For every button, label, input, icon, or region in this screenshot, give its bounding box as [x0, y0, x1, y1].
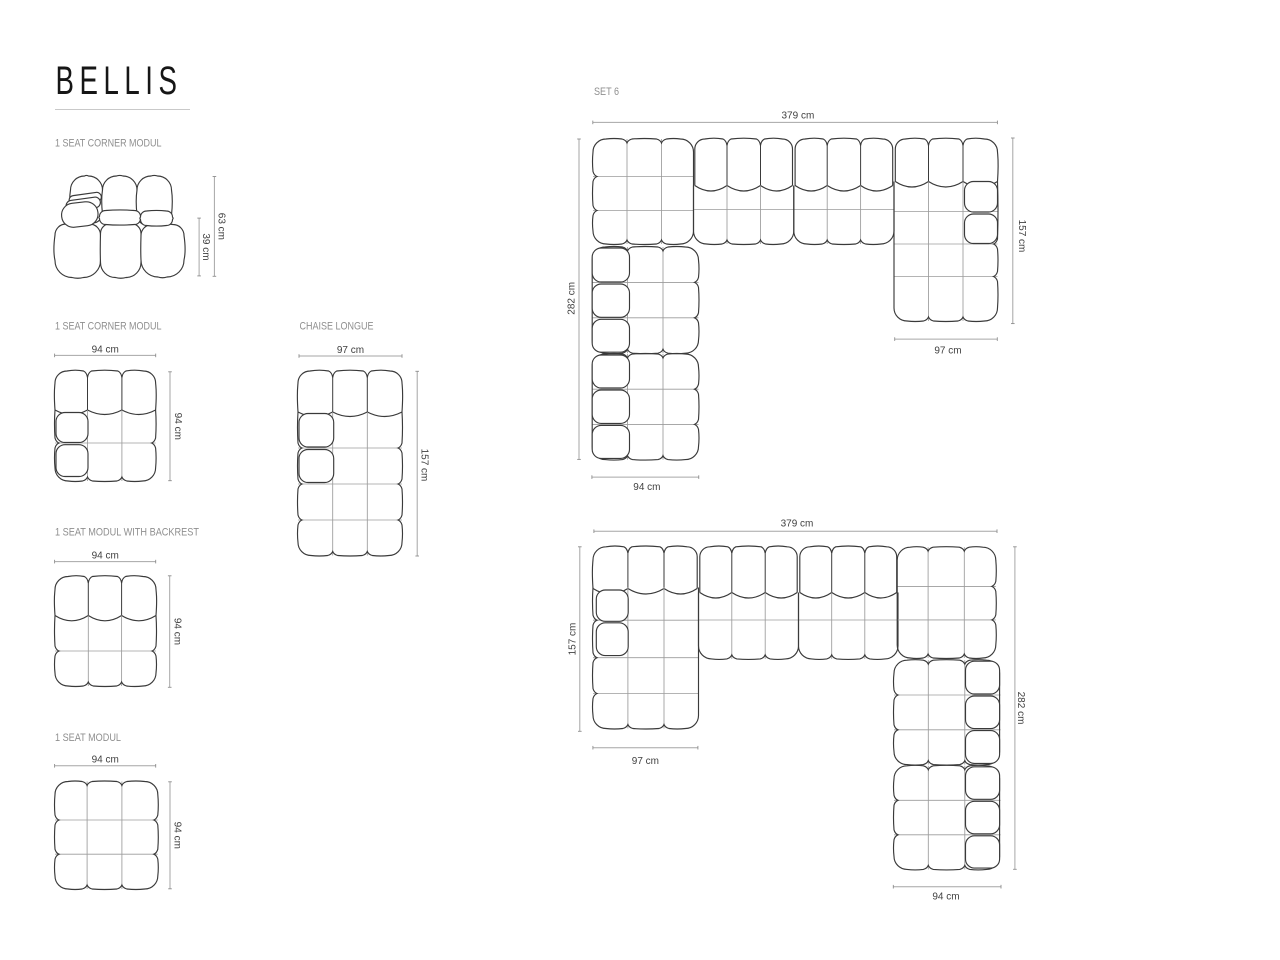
svg-text:94 cm: 94 cm	[633, 482, 660, 493]
svg-text:379 cm: 379 cm	[782, 111, 815, 122]
svg-text:94 cm: 94 cm	[172, 413, 183, 440]
svg-text:94 cm: 94 cm	[92, 344, 119, 355]
svg-text:282 cm: 282 cm	[1015, 692, 1026, 725]
svg-text:94 cm: 94 cm	[92, 755, 119, 766]
svg-text:282 cm: 282 cm	[567, 282, 578, 315]
svg-text:63 cm: 63 cm	[215, 213, 226, 240]
svg-text:94 cm: 94 cm	[172, 618, 183, 645]
svg-text:97 cm: 97 cm	[632, 756, 659, 767]
svg-text:94 cm: 94 cm	[172, 822, 183, 849]
svg-text:94 cm: 94 cm	[92, 551, 119, 562]
svg-text:379 cm: 379 cm	[781, 519, 814, 530]
svg-text:CHAISE LONGUE: CHAISE LONGUE	[300, 321, 374, 333]
svg-text:97 cm: 97 cm	[337, 345, 364, 356]
svg-text:97 cm: 97 cm	[934, 345, 961, 356]
svg-text:1 SEAT CORNER MODUL: 1 SEAT CORNER MODUL	[55, 321, 162, 333]
svg-text:94 cm: 94 cm	[932, 892, 959, 903]
svg-text:BELLIS: BELLIS	[56, 59, 183, 103]
svg-text:1 SEAT MODUL: 1 SEAT MODUL	[55, 732, 121, 744]
svg-text:1 SEAT MODUL WITH BACKREST: 1 SEAT MODUL WITH BACKREST	[55, 527, 199, 539]
svg-text:1 SEAT CORNER MODUL: 1 SEAT CORNER MODUL	[55, 137, 162, 149]
svg-text:157 cm: 157 cm	[567, 623, 578, 656]
svg-text:157 cm: 157 cm	[419, 449, 430, 482]
svg-text:39 cm: 39 cm	[200, 233, 211, 260]
svg-text:157 cm: 157 cm	[1016, 220, 1027, 253]
svg-text:SET 6: SET 6	[594, 86, 619, 98]
